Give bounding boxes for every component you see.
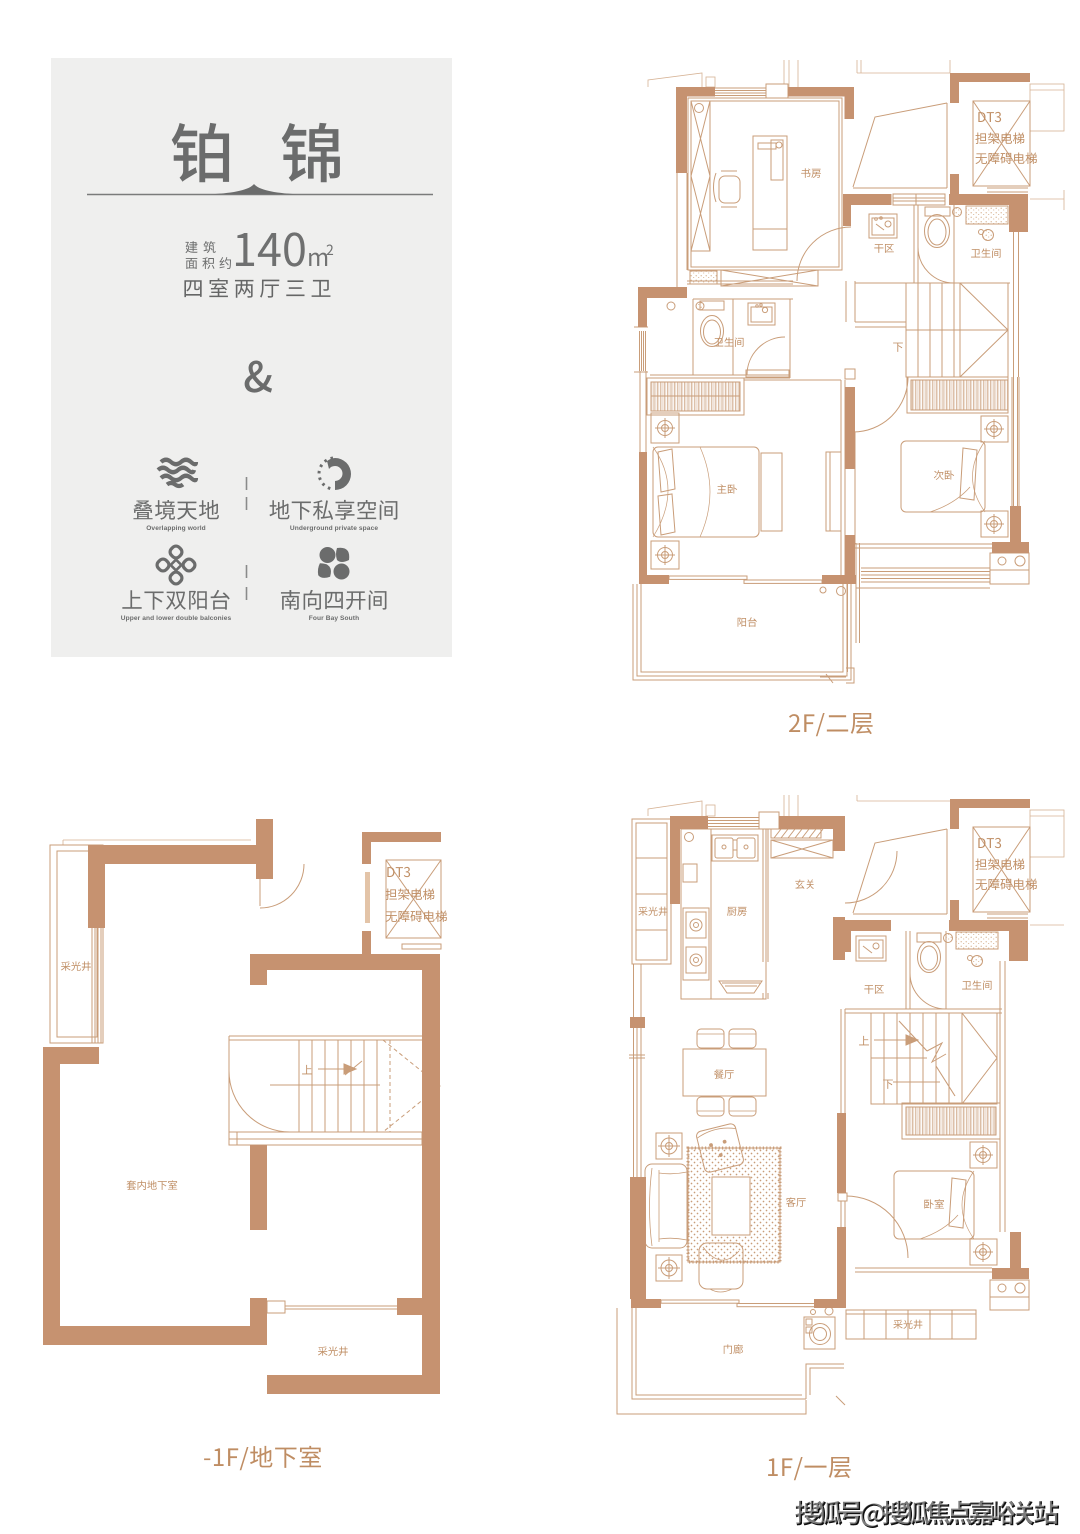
svg-text:Upper and lower double balconi: Upper and lower double balconies: [121, 615, 232, 622]
svg-text:Four Bay South: Four Bay South: [309, 615, 360, 622]
svg-text:Overlapping world: Overlapping world: [146, 525, 206, 532]
svg-text:Underground private space: Underground private space: [290, 525, 378, 532]
